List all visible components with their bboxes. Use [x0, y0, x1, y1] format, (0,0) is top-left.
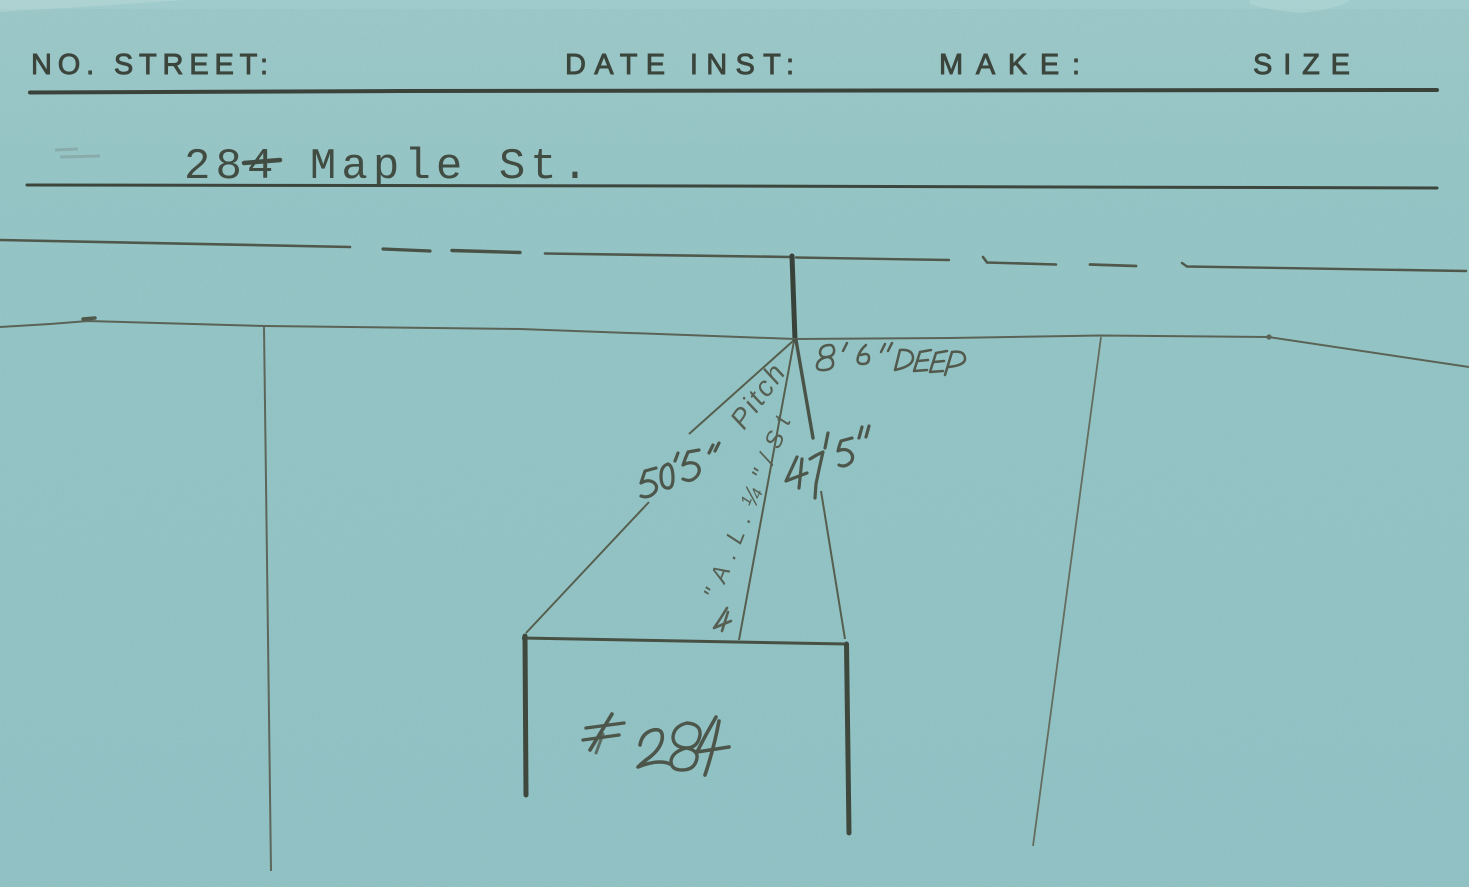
svg-text:DATE INST:: DATE INST: [565, 49, 800, 81]
svg-text:MAKE:: MAKE: [939, 49, 1086, 81]
svg-text:NO. STREET:: NO. STREET: [31, 49, 274, 81]
svg-text:SIZE: SIZE [1253, 49, 1359, 81]
